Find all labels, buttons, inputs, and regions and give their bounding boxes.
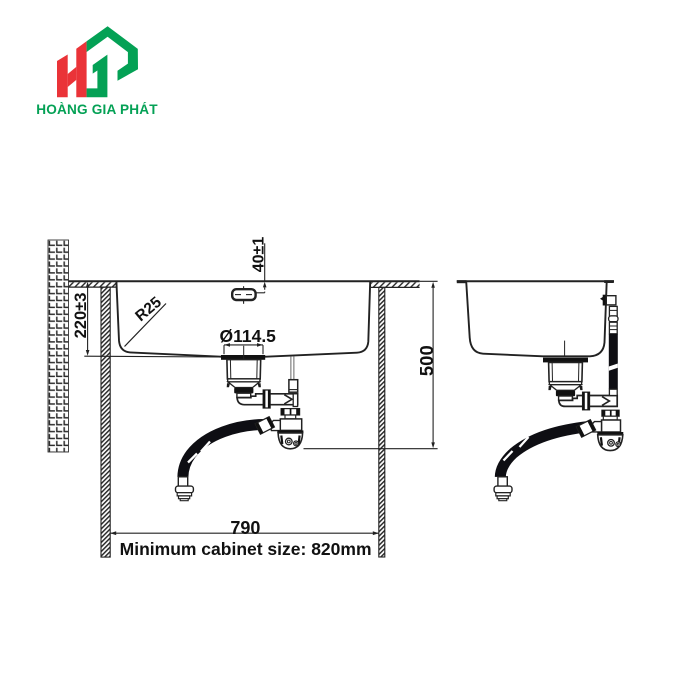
svg-text:Ø114.5: Ø114.5 — [219, 326, 276, 346]
svg-text:HOÀNG GIA PHÁT: HOÀNG GIA PHÁT — [36, 102, 158, 117]
svg-text:Minimum cabinet size: 820mm: Minimum cabinet size: 820mm — [120, 539, 372, 559]
svg-text:500: 500 — [416, 345, 437, 376]
svg-text:790: 790 — [230, 518, 260, 538]
